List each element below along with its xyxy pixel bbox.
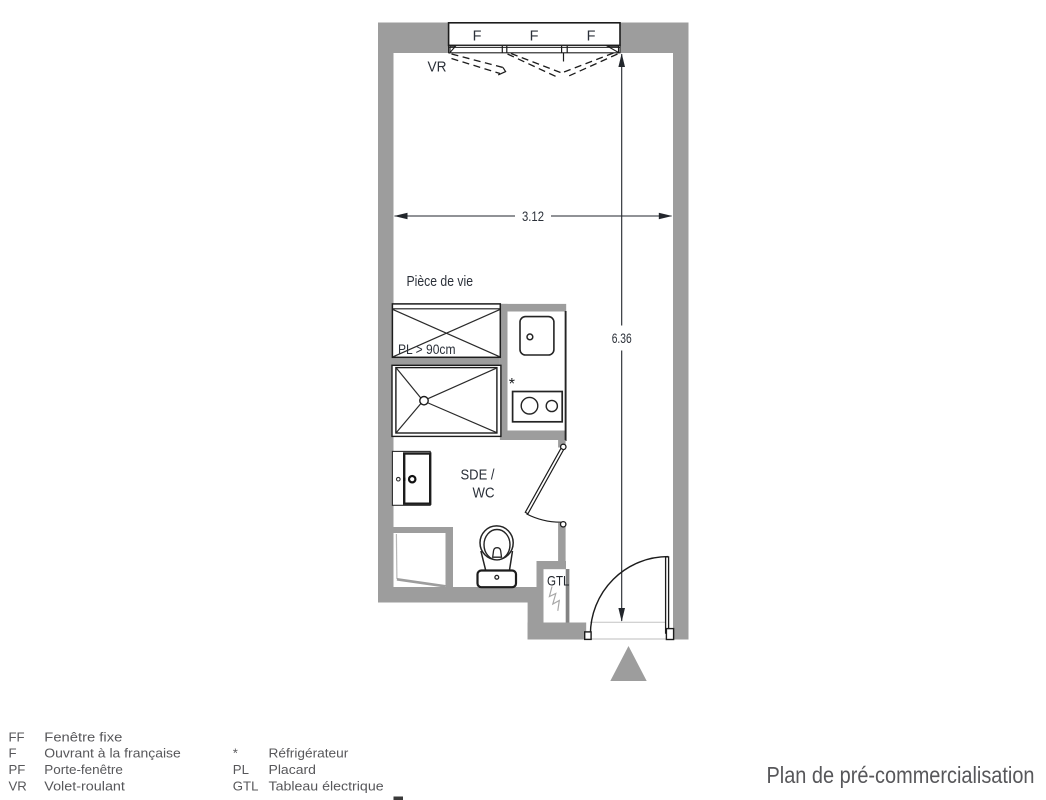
- svg-text:Ouvrant à la française: Ouvrant à la française: [44, 746, 181, 761]
- svg-text:Fenêtre fixe: Fenêtre fixe: [44, 729, 122, 744]
- svg-text:Plan de pré-commercialisation: Plan de pré-commercialisation: [767, 762, 1035, 788]
- svg-text:VR: VR: [9, 779, 27, 794]
- svg-text:Tableau électrique: Tableau électrique: [269, 779, 384, 794]
- svg-text:VR: VR: [428, 60, 447, 76]
- svg-text:Réfrigérateur: Réfrigérateur: [269, 746, 349, 761]
- svg-text:PF: PF: [9, 762, 26, 777]
- svg-text:*: *: [233, 746, 238, 761]
- svg-text:Porte-fenêtre: Porte-fenêtre: [44, 762, 123, 777]
- svg-text:F: F: [530, 29, 539, 45]
- svg-text:*: *: [509, 376, 515, 393]
- svg-text:F: F: [587, 29, 596, 45]
- svg-text:PL: PL: [233, 762, 249, 777]
- svg-text:PL > 90cm: PL > 90cm: [398, 342, 456, 357]
- svg-text:FF: FF: [9, 729, 25, 744]
- svg-text:WC: WC: [473, 486, 495, 502]
- svg-text:6.36: 6.36: [612, 331, 632, 346]
- svg-text:3.12: 3.12: [522, 209, 544, 224]
- svg-text:Pièce de vie: Pièce de vie: [407, 274, 474, 290]
- svg-text:F: F: [473, 29, 482, 45]
- svg-text:Volet-roulant: Volet-roulant: [44, 779, 125, 794]
- svg-text:F: F: [9, 746, 17, 761]
- svg-text:SDE /: SDE /: [461, 468, 496, 484]
- svg-text:Placard: Placard: [269, 762, 316, 777]
- svg-text:GTL: GTL: [233, 779, 259, 794]
- svg-text:GTL: GTL: [547, 573, 570, 589]
